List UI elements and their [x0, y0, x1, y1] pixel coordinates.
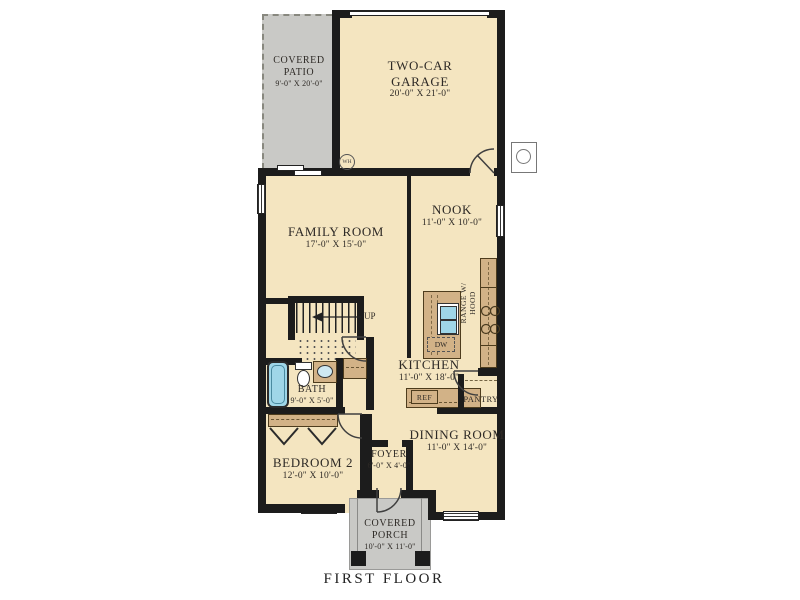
range-burner	[482, 325, 491, 334]
range-burner	[482, 307, 491, 316]
bedroom2-dims: 12'-0" X 10'-0"	[273, 471, 353, 482]
bedroom2-label: BEDROOM 2 12'-0" X 10'-0"	[273, 455, 353, 482]
garage-label: TWO-CAR GARAGE 20'-0" X 21'-0"	[388, 58, 453, 101]
family-room-dims: 17'-0" X 15'-0"	[288, 240, 384, 251]
foyer-dims: 6'-0" X 4'-0"	[367, 461, 410, 471]
range-burner	[491, 307, 500, 316]
plan-title: FIRST FLOOR	[323, 571, 444, 588]
nook-label: NOOK 11'-0" X 10'-0"	[422, 202, 482, 229]
patio-name-line1: COVERED	[273, 55, 324, 67]
garage-name-line2: GARAGE	[388, 74, 453, 90]
garage-entry-door-leaf	[477, 155, 494, 173]
stairs-arrow-head	[312, 313, 322, 322]
family-room-name: FAMILY ROOM	[288, 224, 384, 240]
kitchen-name: KITCHEN	[398, 357, 459, 373]
bedroom2-name: BEDROOM 2	[273, 455, 353, 471]
closet-bifold-door	[270, 428, 298, 444]
front-door-arc	[377, 488, 401, 512]
porch-dims: 10'-0" X 11'-0"	[364, 542, 415, 552]
garage-name-line1: TWO-CAR	[388, 58, 453, 74]
porch-label: COVERED PORCH 10'-0" X 11'-0"	[364, 518, 415, 552]
hall-door-arc	[342, 337, 366, 361]
kitchen-dims: 11'-0" X 18'-0"	[398, 373, 459, 384]
patio-dims: 9'-0" X 20'-0"	[273, 79, 324, 89]
foyer-label: FOYER 6'-0" X 4'-0"	[367, 449, 410, 471]
kitchen-label: KITCHEN 11'-0" X 18'-0"	[398, 357, 459, 384]
dining-name: DINING ROOM	[409, 427, 504, 443]
closet-bifold-door	[308, 428, 336, 444]
porch-name-line1: COVERED	[364, 518, 415, 530]
bedroom-door-arc	[338, 414, 362, 438]
patio-label: COVERED PATIO 9'-0" X 20'-0"	[273, 55, 324, 89]
porch-name-line2: PORCH	[364, 530, 415, 542]
bath-name: BATH	[290, 384, 333, 396]
foyer-name: FOYER	[367, 449, 410, 461]
garage-dims: 20'-0" X 21'-0"	[388, 89, 453, 100]
bath-dims: 9'-0" X 5'-0"	[290, 396, 333, 406]
nook-name: NOOK	[422, 202, 482, 218]
bath-label: BATH 9'-0" X 5'-0"	[290, 384, 333, 406]
range-burner	[491, 325, 500, 334]
nook-dims: 11'-0" X 10'-0"	[422, 218, 482, 229]
family-room-label: FAMILY ROOM 17'-0" X 15'-0"	[288, 224, 384, 251]
dining-label: DINING ROOM 11'-0" X 14'-0"	[409, 427, 504, 454]
patio-name-line2: PATIO	[273, 67, 324, 79]
dining-dims: 11'-0" X 14'-0"	[409, 443, 504, 454]
floor-plan: UP DW RANGE W/	[0, 0, 800, 600]
